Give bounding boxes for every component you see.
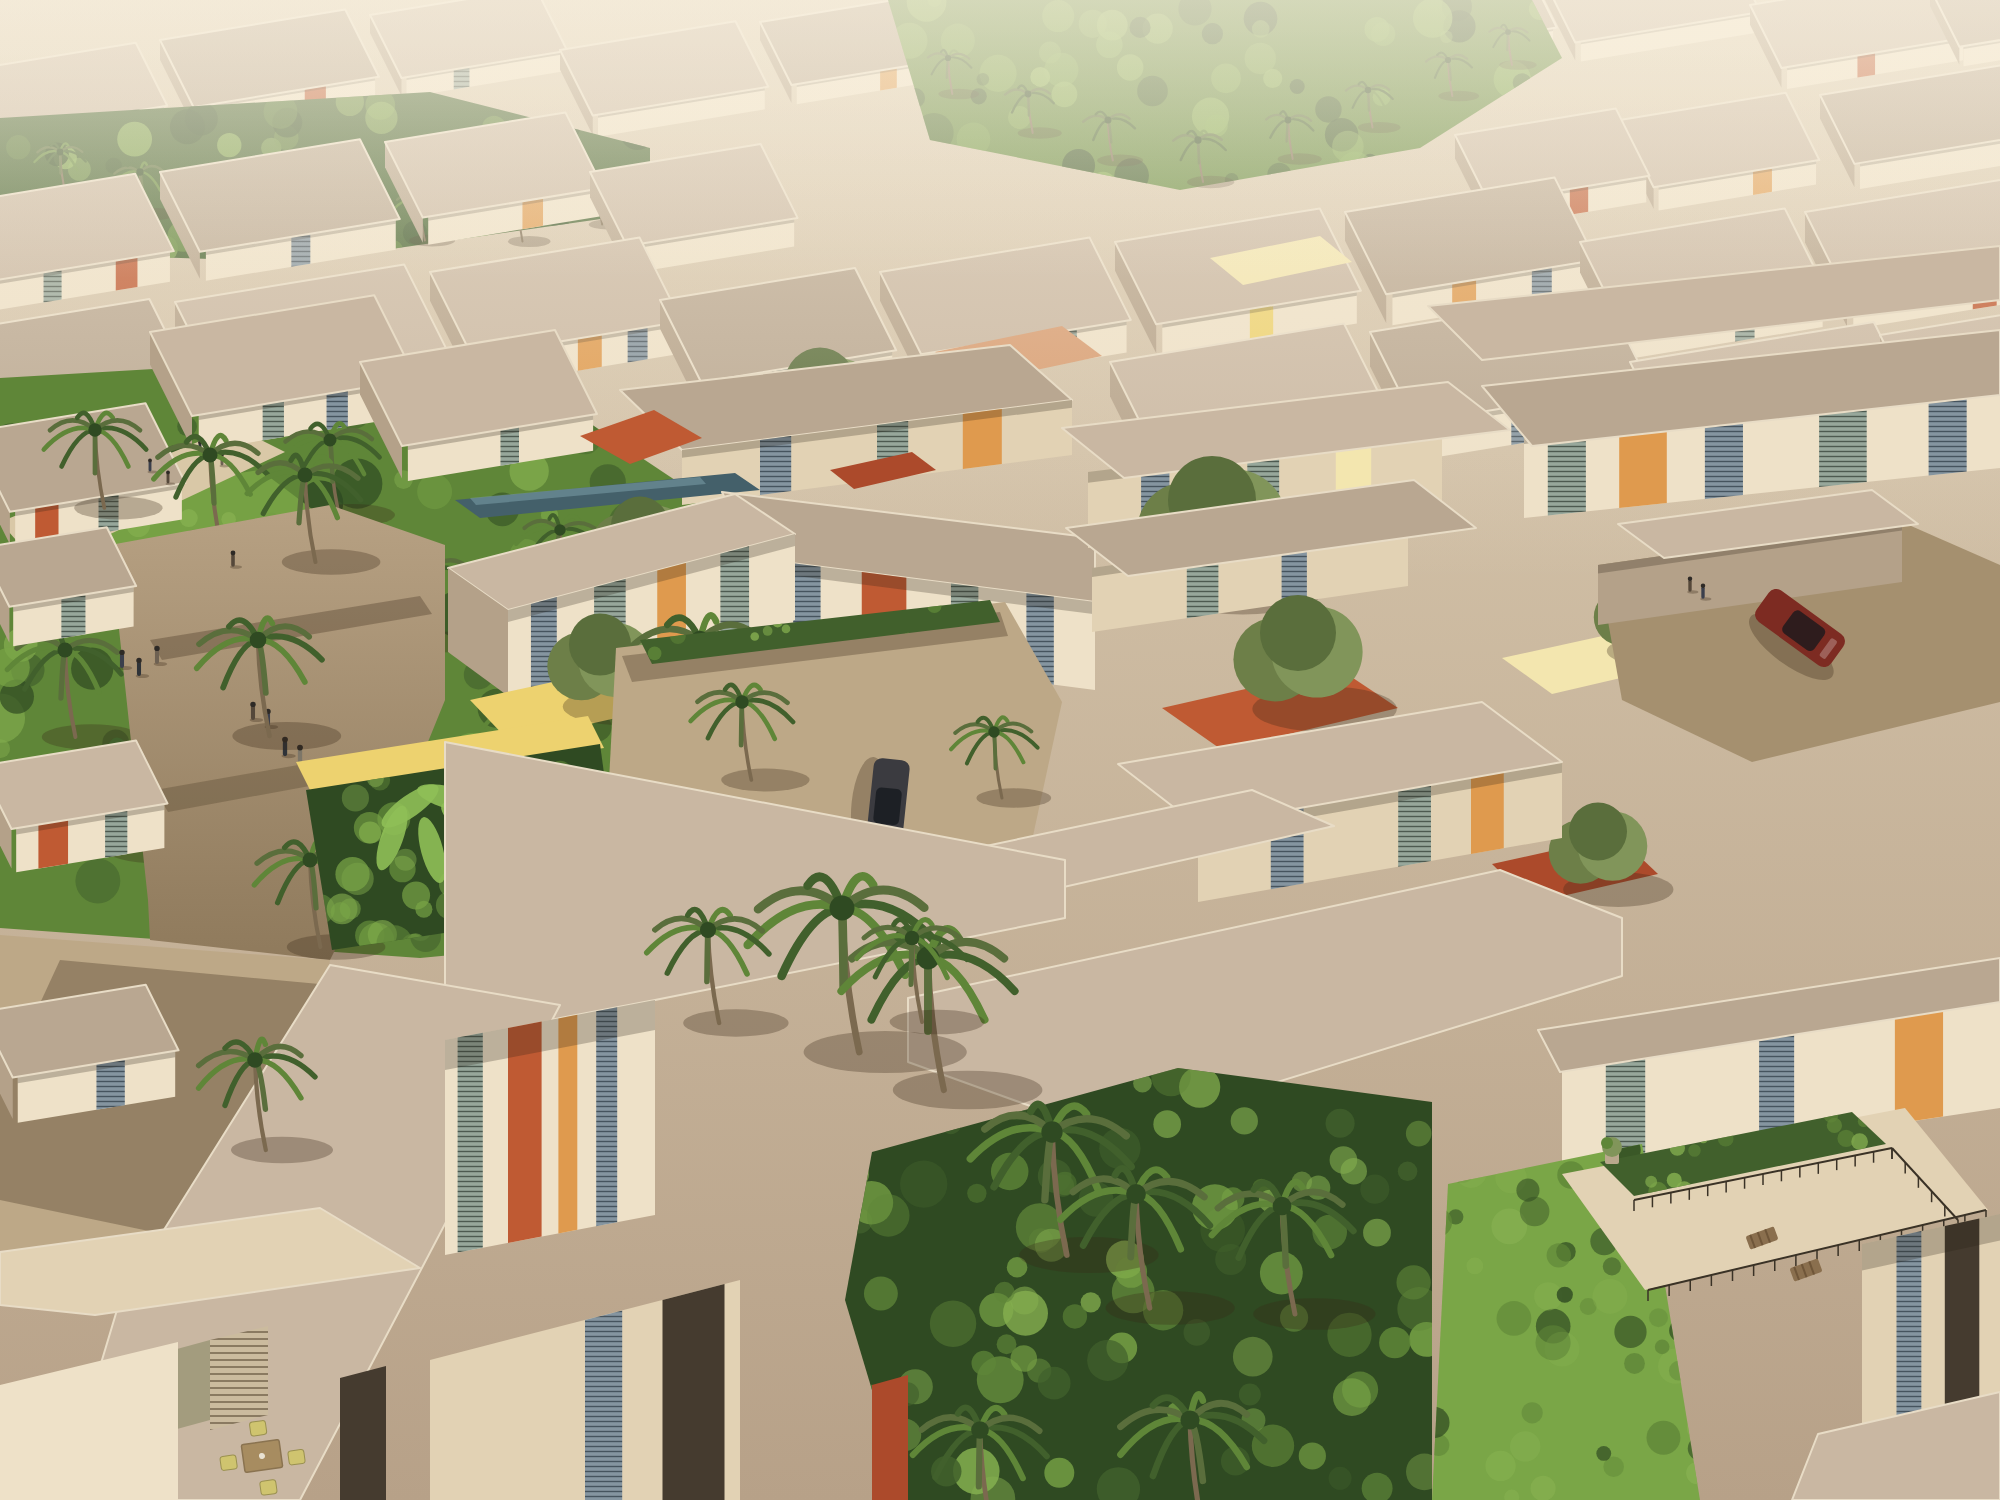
scene-root — [0, 0, 2000, 1500]
aerial-architectural-rendering — [0, 0, 2000, 1500]
louver-screen — [210, 1326, 268, 1430]
door-recess — [340, 1366, 386, 1500]
wall-brick — [872, 1375, 908, 1500]
rendering-canvas — [0, 0, 2000, 1500]
haze — [0, 0, 2000, 280]
house — [0, 527, 136, 646]
facade — [445, 1000, 655, 1255]
